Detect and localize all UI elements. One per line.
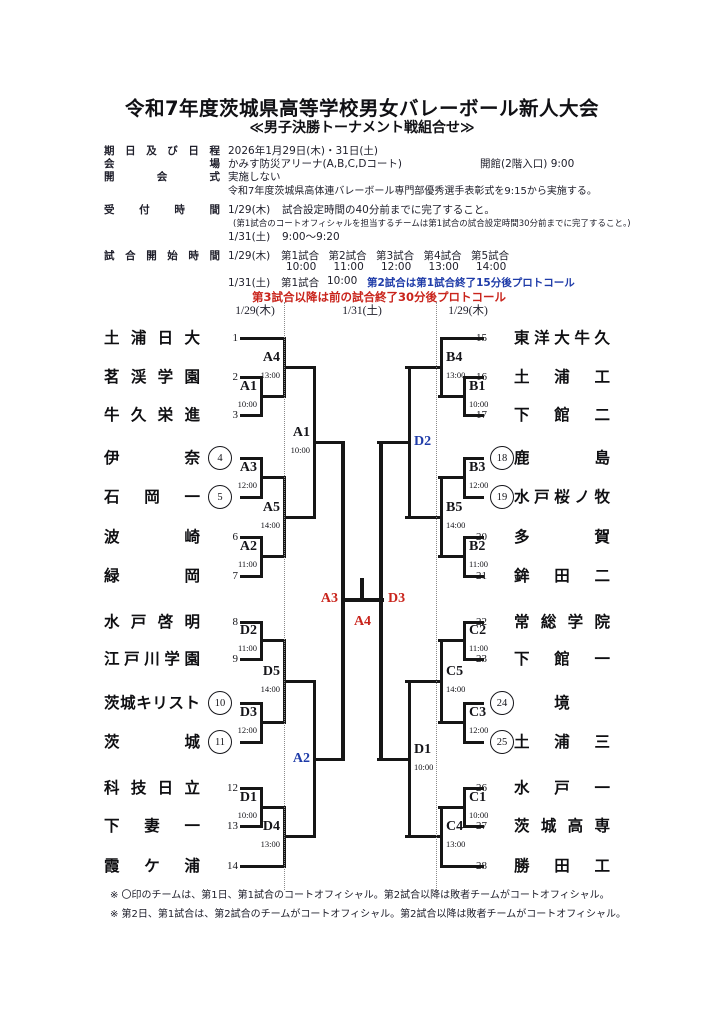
team-name: 茗渓学園 (104, 367, 200, 387)
column-date: 1/31(土) (317, 302, 407, 318)
team-name: 下館二 (514, 405, 610, 425)
start-day2-blue-note: 第2試合は第1試合終了15分後プロトコール (367, 275, 575, 290)
start-day2-time: 10:00 (327, 275, 357, 287)
match-time: 14:00 (446, 520, 496, 530)
team-name: 茨城キリスト (104, 693, 200, 713)
match-code: B4 (446, 350, 496, 366)
team-line (440, 865, 484, 868)
match-time: 14:00 (230, 684, 280, 694)
match-code: A5 (230, 500, 280, 516)
team-name: 鉾田二 (514, 566, 610, 586)
match-slot-time: 14:00 (471, 261, 519, 273)
match-code: C3 (469, 705, 519, 721)
team-number: 19 (497, 492, 508, 503)
team-name: 水戸桜ノ牧 (514, 487, 610, 507)
reception-label: 受付時間 (104, 202, 220, 217)
match-time: 11:00 (469, 643, 519, 653)
match-code: A3 (207, 460, 257, 476)
team-name: 科技日立 (104, 778, 200, 798)
reception-day1-value: 試合設定時間の40分前までに完了すること。 (282, 202, 495, 217)
start-day2: 1/31(土) (228, 275, 270, 290)
round2-winner-line (283, 835, 316, 838)
match-slot-time: 12:00 (376, 261, 424, 273)
match-time: 13:00 (446, 370, 496, 380)
match-slot-time: 11:00 (329, 261, 377, 273)
match-code: B3 (469, 460, 519, 476)
match-time: 14:00 (446, 684, 496, 694)
start-day2-match: 第1試合 (281, 275, 319, 290)
team-name: 多賀 (514, 527, 610, 547)
match-code: D2 (414, 434, 466, 450)
team-name: 下妻一 (104, 816, 200, 836)
team-line (463, 741, 484, 744)
match-time: 13:00 (446, 839, 496, 849)
team-number: 5 (217, 492, 222, 503)
footnote-2: ※ 第2日、第1試合は、第2試合のチームがコートオフィシャル。第2試合以降は敗者… (110, 905, 626, 920)
team-name: 鹿島 (514, 448, 610, 468)
ceremony-extra: 令和7年度茨城県高体連バレーボール専門部優秀選手表彰式を9:15から実施する。 (228, 182, 597, 197)
team-name: 緑岡 (104, 566, 200, 586)
team-line (463, 658, 484, 661)
start-day1-times: 10:0011:0012:0013:0014:00 (281, 261, 519, 273)
team-line (463, 575, 484, 578)
match-code: D2 (207, 623, 257, 639)
team-line (440, 337, 484, 340)
match-code: B5 (446, 500, 496, 516)
footnote-1: ※ 〇印のチームは、第1日、第1試合のコートオフィシャル。第2試合以降は敗者チー… (110, 886, 610, 901)
match-time: 10:00 (469, 810, 519, 820)
match-code: C4 (446, 819, 496, 835)
match-code: C5 (446, 664, 496, 680)
reception-day2-value: 9:00～9:20 (282, 229, 340, 244)
reception-day1: 1/29(木) (228, 202, 270, 217)
match-time: 13:00 (230, 370, 280, 380)
match-time: 10:00 (414, 762, 466, 772)
start-day1: 1/29(木) (228, 248, 270, 263)
round2-winner-line (283, 366, 316, 369)
match-time: 10:00 (207, 810, 257, 820)
match-time: 11:00 (469, 559, 519, 569)
final-code: A4 (341, 614, 384, 630)
match-code: C2 (469, 623, 519, 639)
semifinal-code: A3 (300, 591, 338, 607)
team-name: 土浦三 (514, 732, 610, 752)
match-time: 12:00 (469, 725, 519, 735)
team-name: 波崎 (104, 527, 200, 547)
team-name: 石岡一 (104, 487, 200, 507)
team-line (240, 337, 286, 340)
team-name: 江戸川学園 (104, 649, 200, 669)
match-code: D3 (207, 705, 257, 721)
match-code: D1 (207, 790, 257, 806)
column-separator (284, 302, 285, 890)
team-name: 土浦日大 (104, 328, 200, 348)
start-time-label: 試合開始時間 (104, 248, 220, 263)
page-subtitle: ≪男子決勝トーナメント戦組合せ≫ (0, 117, 724, 137)
team-name: 茨城 (104, 732, 200, 752)
match-time: 14:00 (230, 520, 280, 530)
semifinal-code: D3 (388, 591, 426, 607)
match-code: D1 (414, 742, 466, 758)
match-code: A1 (207, 379, 257, 395)
reception-day1-note: (第1試合のコートオフィシャルを担当するチームは第1試合の試合設定時間30分前ま… (233, 217, 631, 229)
team-name: 東洋大牛久 (514, 328, 610, 348)
team-name: 水戸啓明 (104, 612, 200, 632)
match-time: 13:00 (230, 839, 280, 849)
team-name: 土浦工 (514, 367, 610, 387)
match-code: B1 (469, 379, 519, 395)
match-time: 10:00 (207, 399, 257, 409)
ceremony-label: 開会式 (104, 169, 220, 184)
tournament-sheet: 令和7年度茨城県高等学校男女バレーボール新人大会 ≪男子決勝トーナメント戦組合せ… (0, 0, 724, 1024)
team-name: 茨城高専 (514, 816, 610, 836)
team-number: 14 (206, 859, 238, 873)
match-time: 12:00 (469, 480, 519, 490)
match-time: 11:00 (207, 643, 257, 653)
team-name: 伊奈 (104, 448, 200, 468)
team-line (463, 414, 484, 417)
team-number: 7 (206, 569, 238, 583)
team-number: 11 (215, 737, 225, 748)
match-code: D5 (230, 664, 280, 680)
match-time: 12:00 (207, 480, 257, 490)
venue-open-note: 開館(2階入口) 9:00 (480, 156, 574, 171)
round2-winner-line (283, 516, 316, 519)
champion-line (360, 578, 364, 602)
match-slot-time: 13:00 (424, 261, 472, 273)
match-code: B2 (469, 539, 519, 555)
team-line (240, 865, 286, 868)
team-name: 下館一 (514, 649, 610, 669)
team-name: 勝田工 (514, 856, 610, 876)
team-number: 1 (206, 331, 238, 345)
match-time: 12:00 (207, 725, 257, 735)
column-separator (436, 302, 437, 890)
match-code: A4 (230, 350, 280, 366)
match-time: 10:00 (469, 399, 519, 409)
round2-winner-line (283, 680, 316, 683)
column-date: 1/29(木) (210, 302, 300, 318)
match-code: A2 (207, 539, 257, 555)
team-number: 25 (497, 737, 508, 748)
match-code: C1 (469, 790, 519, 806)
team-number: 3 (206, 408, 238, 422)
team-name: 境 (514, 693, 610, 713)
match-code: D4 (230, 819, 280, 835)
team-name: 水戸一 (514, 778, 610, 798)
team-line (463, 496, 484, 499)
reception-day2: 1/31(土) (228, 229, 270, 244)
match-time: 11:00 (207, 559, 257, 569)
match-slot-time: 10:00 (281, 261, 329, 273)
team-name: 霞ケ浦 (104, 856, 200, 876)
team-name: 常総学院 (514, 612, 610, 632)
team-name: 牛久栄進 (104, 405, 200, 425)
